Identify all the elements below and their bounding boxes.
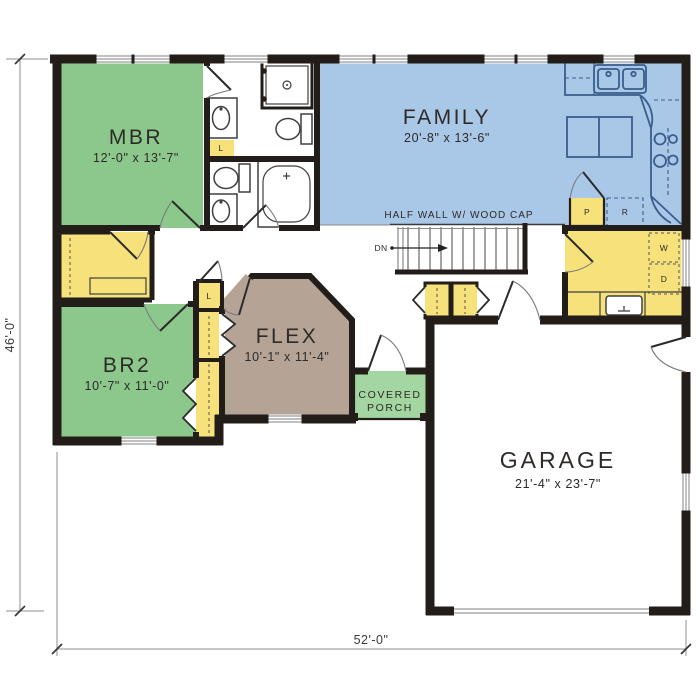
bifold-hall-closet-right xyxy=(477,287,489,313)
pantry-label: P xyxy=(584,207,590,217)
room-family xyxy=(317,63,686,228)
garage-label: GARAGE xyxy=(500,447,616,473)
dryer-label: D xyxy=(661,274,668,284)
window-garage xyxy=(682,471,691,514)
bifold-hall-closet-left xyxy=(413,287,425,313)
door-garage-entry xyxy=(498,281,540,320)
window-br2 xyxy=(119,437,160,446)
mbr-dims: 12'-0" x 13'-7" xyxy=(93,151,179,165)
garage-door xyxy=(451,607,652,616)
porch-label-line2: PORCH xyxy=(367,402,413,414)
window-family-right xyxy=(482,55,551,64)
floor-plan-page: 46'-0" 52'-0" MBR 12'-0" x 13'-7" FAMILY… xyxy=(0,0,700,700)
stairs xyxy=(317,225,565,272)
family-label: FAMILY xyxy=(403,106,491,129)
window-family-left xyxy=(337,55,411,64)
porch-post xyxy=(350,413,358,421)
bathtub xyxy=(258,161,315,227)
br2-label: BR2 xyxy=(103,354,151,377)
window-laundry xyxy=(682,237,691,290)
family-dims: 20'-8" x 13'-6" xyxy=(404,131,490,145)
floor-plan-drawing: 46'-0" 52'-0" MBR 12'-0" x 13'-7" FAMILY… xyxy=(0,0,700,700)
mbr-label: MBR xyxy=(109,126,163,149)
window-flex xyxy=(266,415,305,424)
overall-width-dimension: 52'-0" xyxy=(354,633,389,647)
shower-head-icon xyxy=(261,68,267,74)
faucet-dot xyxy=(219,200,222,203)
room-master-closet xyxy=(57,232,152,300)
porch-label-line1: COVERED xyxy=(358,389,421,401)
refrigerator-label: R xyxy=(622,207,629,217)
flex-dims: 10'-1" x 11'-4" xyxy=(245,350,330,364)
window-bath xyxy=(222,55,271,64)
washer-label: W xyxy=(660,243,668,253)
half-wall-inner-line xyxy=(317,225,525,229)
window-mbr xyxy=(94,55,173,64)
faucet-dot xyxy=(219,107,222,110)
stair-treads xyxy=(408,227,518,271)
overall-depth-dimension: 46'-0" xyxy=(3,318,17,353)
porch-post xyxy=(420,413,428,421)
garage-dims: 21'-4" x 23'-7" xyxy=(515,477,601,491)
br2-dims: 10'-7" x 11'-0" xyxy=(85,379,170,393)
door-front-entry xyxy=(368,335,406,371)
master-vanity xyxy=(207,98,237,138)
stair-landing-edge xyxy=(398,227,403,271)
stair-dn-label: DN xyxy=(374,243,387,253)
linen-hall-label: L xyxy=(206,291,211,301)
shower-valve-icon xyxy=(261,96,267,102)
flex-label: FLEX xyxy=(256,325,319,348)
window-kitchen xyxy=(601,55,638,64)
hall-vanity xyxy=(207,194,237,228)
linen-master-label: L xyxy=(218,143,223,153)
half-wall-note: HALF WALL W/ WOOD CAP xyxy=(384,210,533,221)
